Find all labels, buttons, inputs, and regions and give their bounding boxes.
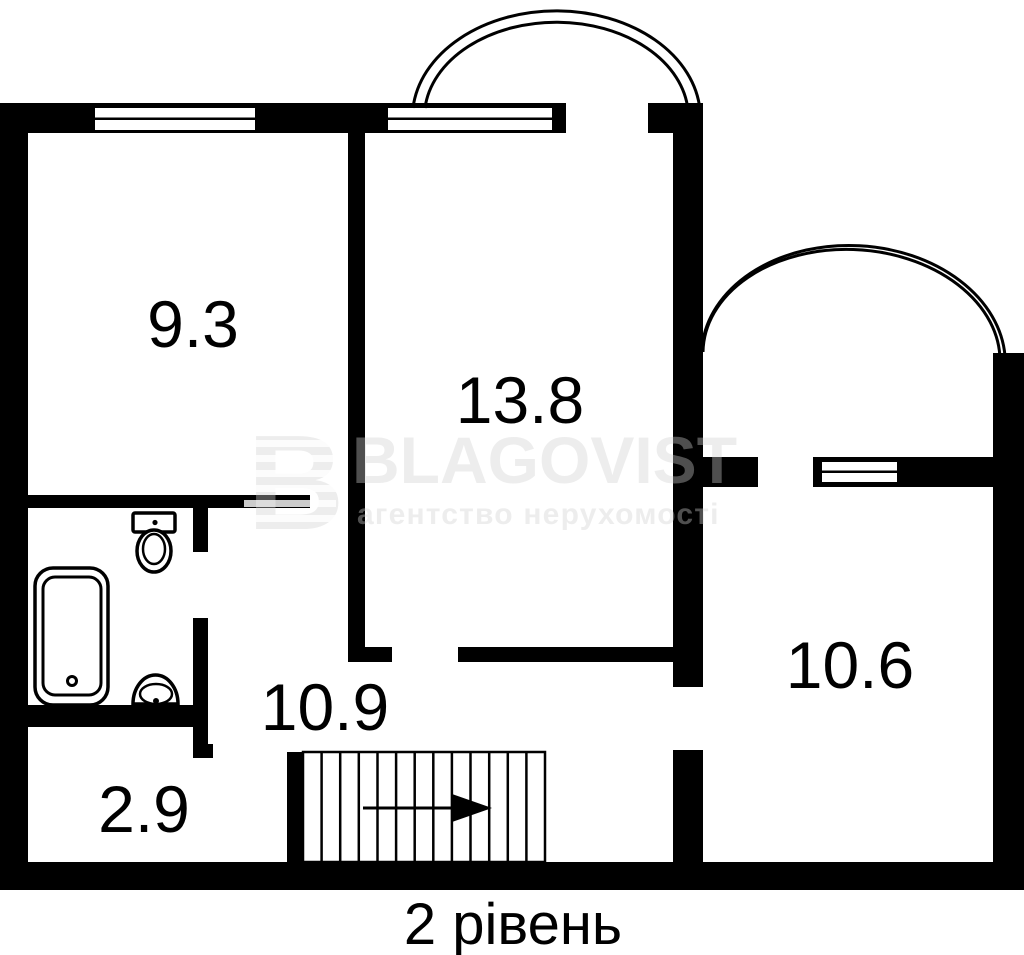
sink-tap [153, 698, 159, 704]
balcony-right-inner-arc [703, 249, 1000, 362]
room-label-2-9: 2.9 [98, 772, 190, 846]
toilet-bowl-inner [143, 534, 165, 564]
watermark-logo-letter: B [247, 407, 345, 558]
room-label-10-9: 10.9 [261, 670, 389, 744]
doorway-right-balcony [758, 457, 813, 487]
sink-icon [133, 675, 178, 704]
window-1-mullion [95, 118, 255, 121]
bathroom-fixtures [35, 513, 178, 705]
wall-room13-bottom [458, 647, 673, 662]
staircase [303, 752, 545, 862]
wall-mid-right-upper [673, 103, 703, 687]
level-caption: 2 рівень [404, 892, 622, 955]
wall-bathroom-right-lower [193, 618, 208, 758]
wall-stair-stub [287, 752, 303, 862]
window-2-mullion [388, 118, 552, 121]
window-3-mullion [822, 471, 897, 474]
room-label-10-6: 10.6 [786, 628, 914, 702]
balcony-top-outer-arc [413, 11, 700, 110]
floor-plan: B BLAGOVIST агентство нерухомості 9.3 13… [0, 0, 1024, 955]
bathtub-icon [35, 568, 108, 705]
wall-right [993, 353, 1024, 890]
wall-mid-right-lower [673, 750, 703, 862]
balcony-right-outer-arc [703, 245, 1005, 356]
window-2 [388, 108, 552, 130]
wall-bathroom-foot [193, 744, 213, 758]
toilet-icon [133, 513, 175, 572]
doorway-top-balcony [566, 103, 648, 133]
bathtub-drain [68, 677, 77, 686]
wall-bottom [0, 862, 1024, 890]
floor-plan-canvas: B BLAGOVIST агентство нерухомості 9.3 13… [0, 0, 1024, 955]
wall-bathroom-bottom [28, 705, 193, 727]
toilet-button [152, 520, 157, 525]
room-label-9-3: 9.3 [147, 287, 239, 361]
window-1 [95, 108, 255, 130]
window-3 [822, 462, 897, 482]
room-label-13-8: 13.8 [456, 363, 584, 437]
wall-partition-stub [348, 647, 392, 662]
wall-left [0, 103, 28, 890]
wall-partition-rooms [348, 133, 365, 662]
balcony-arcs [413, 11, 1005, 362]
wall-bathroom-right-upper [193, 508, 208, 552]
watermark-tagline: агентство нерухомості [357, 498, 720, 531]
